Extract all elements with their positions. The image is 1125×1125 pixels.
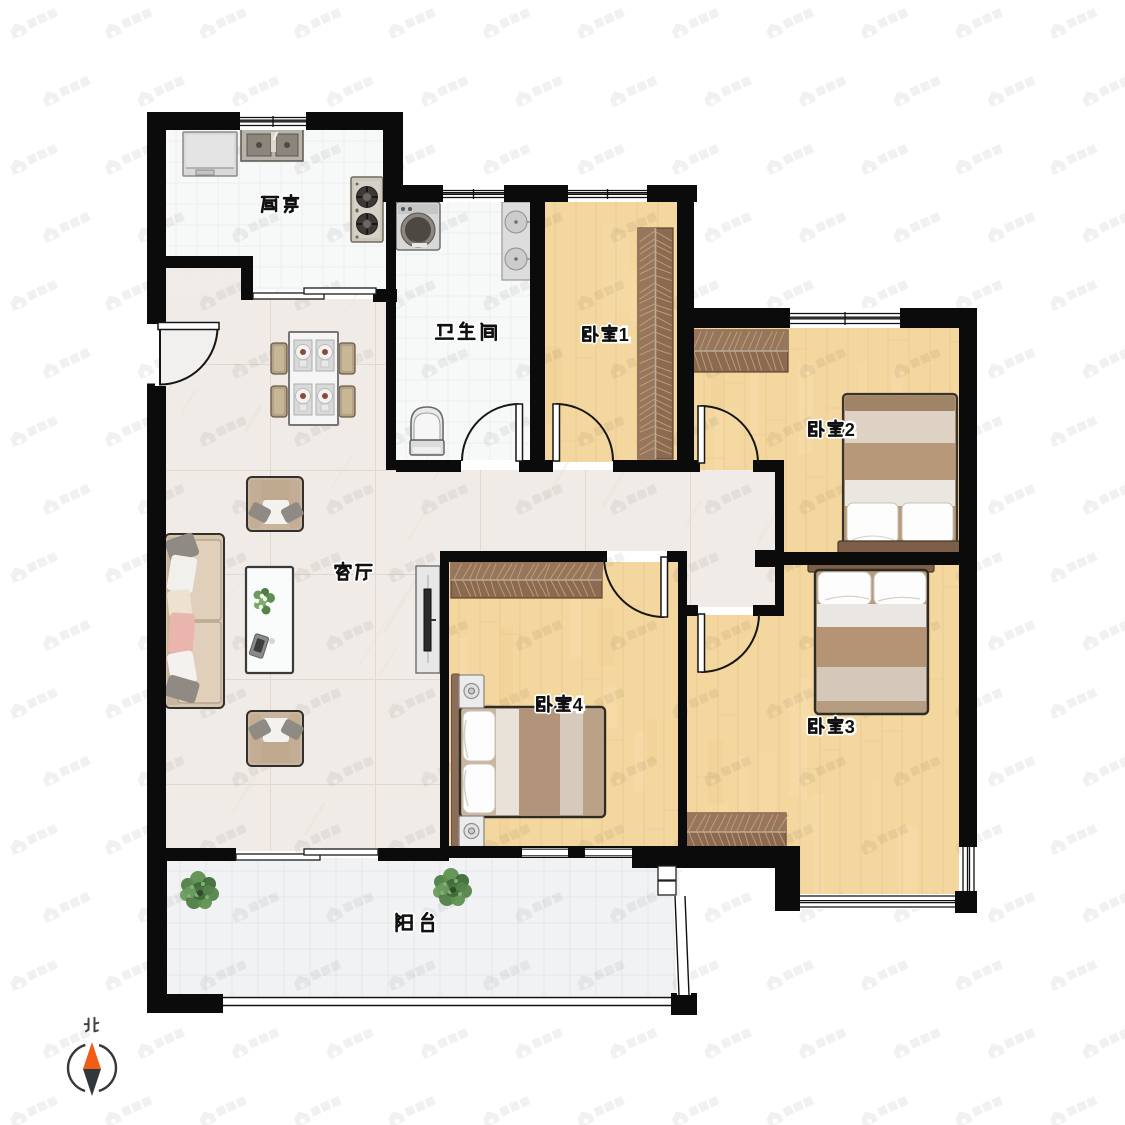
svg-text:3: 3 (845, 716, 855, 737)
svg-text:2: 2 (845, 419, 855, 440)
svg-text:4: 4 (573, 694, 584, 715)
svg-text:1: 1 (619, 324, 629, 345)
